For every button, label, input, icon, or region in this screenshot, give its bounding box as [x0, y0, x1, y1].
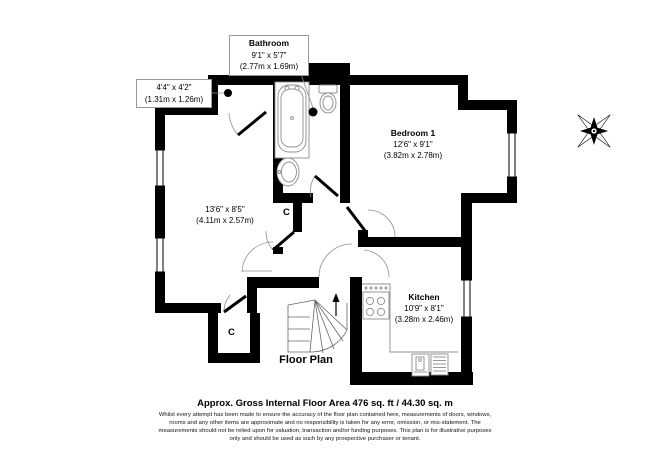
reference-dot [309, 108, 318, 117]
kitchen-sink-icon [412, 354, 429, 376]
wall-segment [461, 203, 472, 280]
wall-segment [507, 177, 517, 203]
wall-segment [293, 203, 302, 232]
room-dim-imperial: 4'4" x 4'2" [138, 82, 210, 94]
door-leaf [273, 232, 294, 250]
disclaimer-line: only and should be used as such by any p… [0, 435, 650, 443]
door-leaf [347, 207, 366, 232]
wall-segment [155, 303, 221, 313]
door-arc [364, 250, 389, 277]
bathtub-icon [275, 82, 309, 158]
room-dim-metric: (4.11m x 2.57m) [187, 215, 263, 226]
door-arc [319, 244, 352, 277]
cupboard-label: C [228, 327, 235, 338]
room-dim-imperial: 9'1" x 5'7" [231, 50, 307, 62]
wall-segment [155, 186, 165, 238]
door-arc [242, 242, 273, 272]
disclaimer-line: measurements should not be relied upon f… [0, 427, 650, 435]
room-name: Bedroom 1 [374, 128, 452, 139]
wall-segment [273, 193, 313, 203]
door-arc [266, 231, 273, 250]
window [155, 238, 165, 272]
room-dim-imperial: 10'9" x 8'1" [386, 303, 462, 314]
reference-dot [224, 89, 232, 97]
wall-segment [350, 372, 473, 385]
window [461, 280, 472, 317]
wall-segment [340, 85, 350, 203]
room-dim-imperial: 13'6" x 8'5" [187, 204, 263, 215]
door-leaf [238, 112, 266, 135]
door-arc [368, 210, 395, 237]
wall-segment [507, 110, 517, 133]
disclaimer: Whilst every attempt has been made to en… [0, 411, 650, 443]
wall-segment [350, 277, 362, 385]
entry-nook-label: 4'4" x 4'2" (1.31m x 1.26m) [136, 79, 212, 108]
door-arc [229, 113, 238, 135]
room-dim-imperial: 12'6" x 9'1" [374, 139, 452, 150]
door-leaf [315, 176, 338, 196]
bathroom-fixtures [275, 82, 337, 186]
living-room-label: 13'6" x 8'5" (4.11m x 2.57m) [187, 204, 263, 226]
wall-segment [461, 317, 472, 377]
compass-rose-icon [575, 112, 612, 149]
room-name: Kitchen [386, 292, 462, 303]
wall-segment [155, 105, 165, 150]
floor-area-heading: Approx. Gross Internal Floor Area 476 sq… [0, 398, 650, 409]
plan-title: Floor Plan [251, 354, 361, 366]
disclaimer-line: rooms and any other items are approximat… [0, 419, 650, 427]
wall-segment [458, 75, 468, 110]
wall-segment [461, 100, 517, 110]
bathroom-label: Bathroom 9'1" x 5'7" (2.77m x 1.69m) [229, 35, 309, 76]
disclaimer-line: Whilst every attempt has been made to en… [0, 411, 650, 419]
bedroom-label: Bedroom 1 12'6" x 9'1" (3.82m x 2.78m) [374, 128, 452, 161]
wall-segment [208, 75, 468, 85]
floor-plan-drawing [0, 0, 650, 459]
toilet-icon [319, 85, 337, 113]
kitchen-label: Kitchen 10'9" x 8'1" (3.28m x 2.46m) [386, 292, 462, 325]
wall-segment [358, 230, 368, 247]
wall-chimney [307, 63, 350, 76]
window [507, 133, 517, 177]
window [155, 150, 165, 186]
cupboard-label: C [283, 207, 290, 218]
room-dim-metric: (3.82m x 2.78m) [374, 150, 452, 161]
appliance-rack-icon [431, 354, 448, 375]
wall-segment [358, 237, 462, 247]
room-dim-metric: (3.28m x 2.46m) [386, 314, 462, 325]
room-dim-metric: (1.31m x 1.26m) [138, 94, 210, 106]
room-dim-metric: (2.77m x 1.69m) [231, 61, 307, 73]
winder-stairs-icon [288, 293, 347, 353]
up-arrow-icon [333, 293, 340, 316]
room-name: Bathroom [231, 38, 307, 50]
floor-plan-page: Bathroom 9'1" x 5'7" (2.77m x 1.69m) 4'4… [0, 0, 650, 459]
wash-basin-icon [277, 158, 299, 186]
wall-segment [247, 277, 319, 288]
